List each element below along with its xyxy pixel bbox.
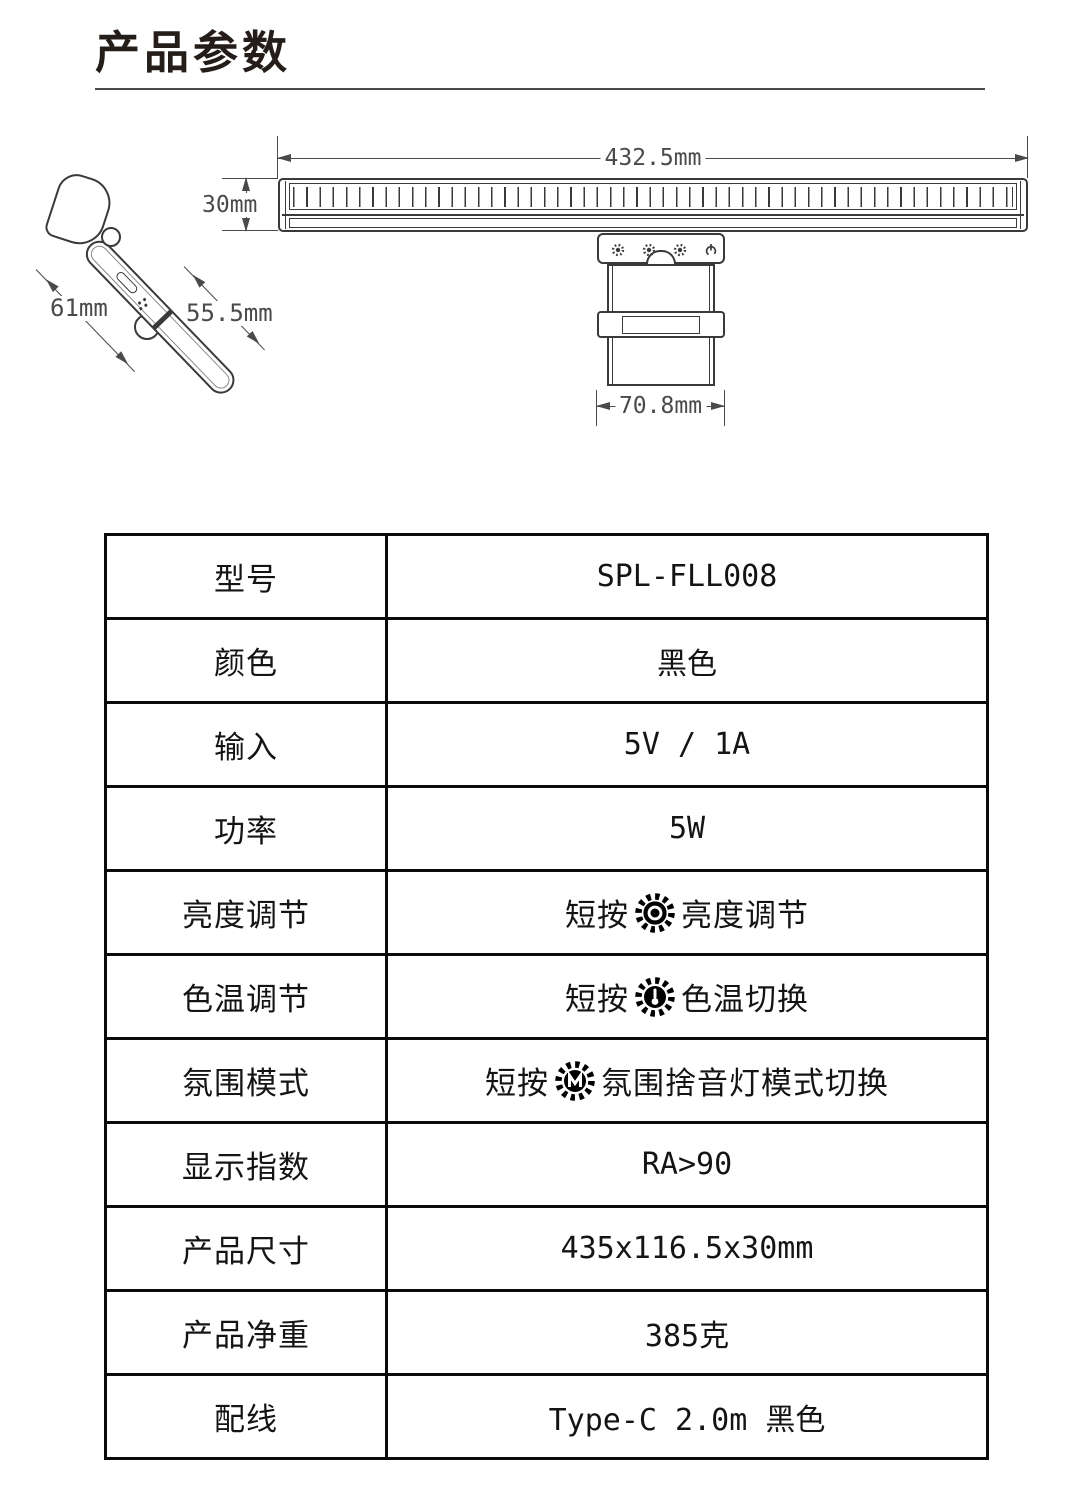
product-spec-sheet: 产品参数 432.5mm: [0, 0, 1080, 1500]
table-row-input: 输入 5V / 1A: [106, 703, 988, 787]
bar-endcap: [1020, 181, 1021, 229]
counterweight-bar: [597, 311, 725, 338]
spec-label: 产品净重: [182, 1318, 310, 1353]
brightness-icon: [632, 890, 678, 936]
spec-label: 氛围模式: [182, 1066, 310, 1101]
led-slats: [293, 187, 1013, 207]
spec-value: 435x116.5x30mm: [561, 1231, 814, 1266]
spec-label: 显示指数: [182, 1150, 310, 1185]
spec-value-prefix: 短按: [565, 890, 629, 935]
button-plate: [597, 233, 725, 264]
dimension-label-55: 55.5mm: [182, 301, 277, 326]
table-row-power: 功率 5W: [106, 787, 988, 871]
page-title: 产品参数: [95, 16, 291, 81]
table-row-model: 型号 SPL-FLL008: [106, 535, 988, 619]
bar-seam: [282, 214, 1024, 216]
spec-table: 型号 SPL-FLL008 颜色 黑色 输入 5V / 1A 功率 5W 亮度调…: [104, 533, 989, 1460]
extension-line: [222, 230, 278, 231]
power-button-icon: [704, 243, 718, 257]
spec-value: 385克: [645, 1319, 729, 1354]
dimension-432: 432.5mm: [278, 158, 1028, 159]
brightness-button-icon: [611, 243, 625, 257]
table-row-ambient-mode: 氛围模式 短按 氛围捨音灯模式切换: [106, 1039, 988, 1123]
counterweight-inner: [622, 316, 700, 334]
table-row-brightness: 亮度调节 短按 亮度调节: [106, 871, 988, 955]
dimension-label-width: 432.5mm: [601, 146, 706, 170]
table-row-size: 产品尺寸 435x116.5x30mm: [106, 1207, 988, 1291]
spec-value: SPL-FLL008: [597, 559, 778, 594]
spec-value-prefix: 短按: [565, 974, 629, 1019]
music-mode-icon: [552, 1058, 598, 1104]
spec-value-prefix: 短按: [485, 1058, 549, 1103]
technical-drawing: 432.5mm 30mm: [0, 100, 1080, 530]
bar-endcap: [285, 181, 286, 229]
spec-value: Type-C 2.0m 黑色: [549, 1403, 826, 1438]
table-row-color-temp: 色温调节 短按 色温切换: [106, 955, 988, 1039]
led-window: [289, 183, 1017, 210]
spec-label: 功率: [214, 814, 278, 849]
spec-value: 5W: [669, 811, 705, 846]
spec-label: 型号: [214, 562, 278, 597]
hinge-circle: [101, 227, 121, 247]
table-row-color: 颜色 黑色: [106, 619, 988, 703]
spec-label: 产品尺寸: [182, 1234, 310, 1269]
spec-value-suffix: 色温切换: [681, 974, 809, 1019]
table-row-cable: 配线 Type-C 2.0m 黑色: [106, 1375, 988, 1459]
table-row-cri: 显示指数 RA>90: [106, 1123, 988, 1207]
dimension-label-height: 30mm: [198, 193, 261, 217]
mode-button-icon: [673, 243, 687, 257]
title-divider: [95, 88, 985, 90]
spec-value: 黑色: [657, 647, 717, 682]
spec-label: 配线: [214, 1402, 278, 1437]
color-temp-button-icon: [642, 243, 656, 257]
extension-line: [222, 178, 278, 179]
spec-label: 颜色: [214, 646, 278, 681]
light-bar: [278, 178, 1028, 232]
dimension-label-bracket: 70.8mm: [615, 394, 706, 418]
spec-value-suffix: 氛围捨音灯模式切换: [601, 1058, 889, 1103]
dimension-708: 70.8mm: [597, 406, 724, 407]
spec-value: 5V / 1A: [624, 727, 750, 762]
spec-label: 亮度调节: [182, 898, 310, 933]
bar-lower-strip: [289, 218, 1017, 228]
spec-value: RA>90: [642, 1147, 732, 1182]
spec-label: 色温调节: [182, 982, 310, 1017]
dimension-label-61: 61mm: [46, 296, 112, 321]
spec-label: 输入: [214, 730, 278, 765]
table-row-weight: 产品净重 385克: [106, 1291, 988, 1375]
spec-value-suffix: 亮度调节: [681, 890, 809, 935]
color-temp-icon: [632, 974, 678, 1020]
